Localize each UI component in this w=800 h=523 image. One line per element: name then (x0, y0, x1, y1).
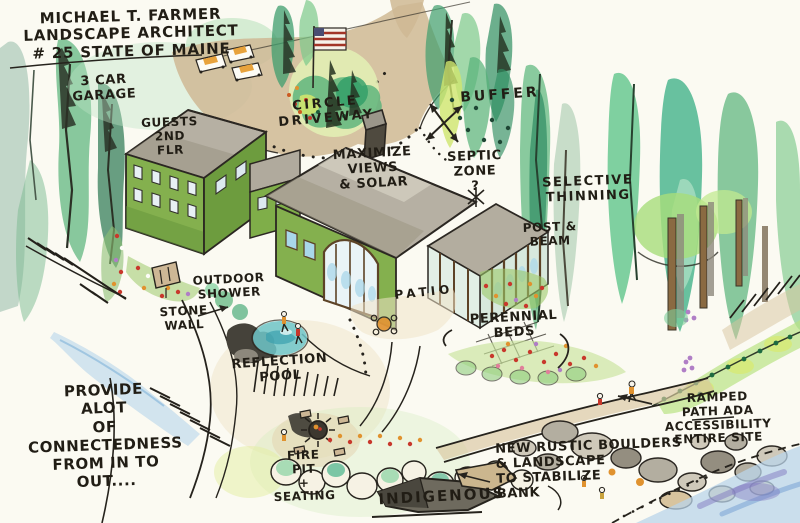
label-post-and-beam: POST & BEAM (512, 220, 589, 250)
label-3-car-garage: 3 CAR GARAGE (51, 71, 156, 106)
label-fire-pit-seating: FIRE PIT + SEATING (265, 448, 343, 506)
landscape-plan-sketch: MICHAEL T. FARMER LANDSCAPE ARCHITECT # … (0, 0, 800, 523)
label-guests-2nd-flr: GUESTS 2ND FLR (129, 115, 210, 159)
label-rustic-boulders: NEW RUSTIC BOULDERS & LANDSCAPE TO STABI… (495, 435, 717, 502)
label-selective-thinning: SELECTIVE THINNING (524, 173, 653, 207)
buffer-planting (439, 57, 514, 158)
label-septic-zone: SEPTIC ZONE ? (436, 149, 514, 196)
title-block: MICHAEL T. FARMER LANDSCAPE ARCHITECT # … (11, 5, 250, 63)
label-connectedness-note: PROVIDE ALOT OF CONNECTEDNESS FROM IN TO… (4, 378, 206, 495)
label-stone-wall: STONE WALL (145, 303, 222, 335)
label-maximize-views-solar: MAXIMIZE VIEWS & SOLAR (311, 144, 435, 195)
